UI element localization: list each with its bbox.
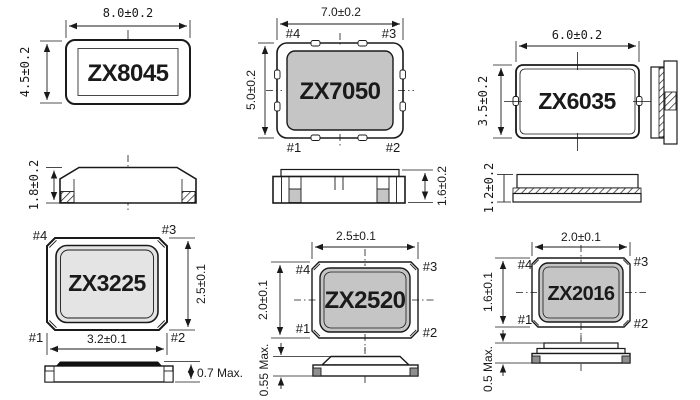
zx6035-part-name: ZX6035 bbox=[538, 88, 616, 114]
zx2016-height-dim-label: 1.6±0.1 bbox=[481, 272, 495, 312]
zx3225-part-name: ZX3225 bbox=[68, 270, 146, 296]
zx8045-side-body bbox=[60, 168, 196, 204]
zx2520-side-pad-left bbox=[313, 368, 321, 376]
zx3225-side-body bbox=[45, 366, 173, 382]
zx2016-pad2-label: #2 bbox=[634, 316, 648, 331]
zx7050-pad2-label: #2 bbox=[386, 140, 400, 155]
zx6035-sideview-seal bbox=[659, 68, 664, 137]
zx6035-width-dim-label: 6.0±0.2 bbox=[552, 28, 603, 42]
zx8045-thickness-dim-label: 1.8±0.2 bbox=[27, 160, 41, 211]
zx3225-side-pad-left bbox=[45, 371, 54, 382]
zx3225-pad1-label: #1 bbox=[29, 330, 43, 345]
zx2016-pad4-label: #4 bbox=[518, 257, 532, 272]
zx3225-thickness-dim-label: 0.7 Max. bbox=[197, 366, 243, 380]
zx2016-side-lid-top bbox=[544, 343, 618, 349]
zx3225-side-view bbox=[45, 362, 173, 383]
zx2016-side-pad-left bbox=[532, 356, 540, 363]
zx7050-side-view bbox=[273, 170, 405, 204]
zx6035-right-side-view bbox=[651, 61, 677, 144]
zx6035-bottom-side-view bbox=[513, 175, 641, 203]
zx2016-pad1-label: #1 bbox=[518, 312, 532, 327]
zx2520-thickness-dim-label: 0.55 Max. bbox=[257, 344, 271, 397]
zx7050-side-lid bbox=[281, 170, 399, 177]
zx7050-height-dim-label: 5.0±0.2 bbox=[244, 70, 258, 110]
zx8045-side-pad-right bbox=[182, 192, 195, 203]
zx2016-side-lid bbox=[537, 349, 625, 354]
zx3225-height-dim-label: 2.5±0.1 bbox=[194, 264, 208, 304]
zx6035-side-lid bbox=[517, 175, 638, 189]
zx2520-side-lid bbox=[322, 357, 409, 366]
zx6035-sideview-pad bbox=[665, 92, 676, 110]
zx8045-part-name: ZX8045 bbox=[87, 60, 168, 87]
zx3225-top-view: ZX3225 bbox=[47, 238, 167, 330]
zx3225-pad4-label: #4 bbox=[33, 228, 47, 243]
zx7050-top-view: ZX7050 bbox=[266, 33, 414, 148]
zx3225-pad3-label: #3 bbox=[162, 222, 176, 237]
zx2520-pad3-label: #3 bbox=[423, 259, 437, 274]
zx6035-top-view: ZX6035 bbox=[504, 52, 651, 151]
zx6035-thickness-dim-label: 1.2±0.2 bbox=[482, 163, 496, 214]
zx3225-side-pad-right bbox=[164, 371, 173, 382]
zx2016-part-name: ZX2016 bbox=[547, 283, 614, 305]
zx2016-side-body bbox=[532, 354, 630, 364]
zx6035-side-base bbox=[513, 194, 641, 203]
zx7050-side-pad-right bbox=[377, 189, 389, 203]
zx7050-pad4-label: #4 bbox=[286, 26, 300, 41]
zx7050-part-name: ZX7050 bbox=[299, 78, 380, 105]
zx2520-height-dim-label: 2.0±0.1 bbox=[256, 280, 270, 320]
zx3225-pad2-label: #2 bbox=[171, 330, 185, 345]
zx3225-side-lid bbox=[56, 362, 162, 367]
zx2016-width-dim-label: 2.0±0.1 bbox=[561, 230, 601, 244]
zx8045-height-dim-label: 4.5±0.2 bbox=[18, 47, 32, 98]
zx2016-side-pad-right bbox=[622, 356, 630, 363]
zx6035-side-seal bbox=[513, 188, 641, 194]
zx7050-pad1-label: #1 bbox=[287, 140, 301, 155]
zx2520-pad2-label: #2 bbox=[423, 325, 437, 340]
zx8045-side-pad-left bbox=[61, 192, 74, 203]
zx2520-pad4-label: #4 bbox=[296, 262, 310, 277]
zx8045-top-view: ZX8045 bbox=[66, 30, 190, 104]
zx7050-side-pad-left bbox=[289, 189, 301, 203]
zx6035-height-dim-label: 3.5±0.2 bbox=[476, 76, 490, 127]
zx2520-part-name: ZX2520 bbox=[324, 287, 405, 314]
zx2520-pad1-label: #1 bbox=[296, 321, 310, 336]
zx2520-side-pad-right bbox=[410, 368, 418, 376]
package-dimension-sheet: 8.0±0.2 ZX8045 4.5±0.2 bbox=[0, 0, 700, 400]
zx2016-pad3-label: #3 bbox=[634, 254, 648, 269]
zx2520-width-dim-label: 2.5±0.1 bbox=[336, 229, 376, 243]
drawing-canvas: 8.0±0.2 ZX8045 4.5±0.2 bbox=[0, 0, 700, 400]
zx2520-side-body bbox=[313, 365, 418, 376]
zx7050-pad3-label: #3 bbox=[382, 26, 396, 41]
zx2016-thickness-dim-label: 0.5 Max. bbox=[481, 346, 495, 392]
zx3225-width-dim-label: 3.2±0.1 bbox=[87, 332, 127, 346]
zx7050-thickness-dim-label: 1.6±0.2 bbox=[435, 166, 449, 206]
zx7050-width-dim-label: 7.0±0.2 bbox=[321, 5, 361, 19]
zx8045-width-dim-label: 8.0±0.2 bbox=[103, 6, 154, 20]
